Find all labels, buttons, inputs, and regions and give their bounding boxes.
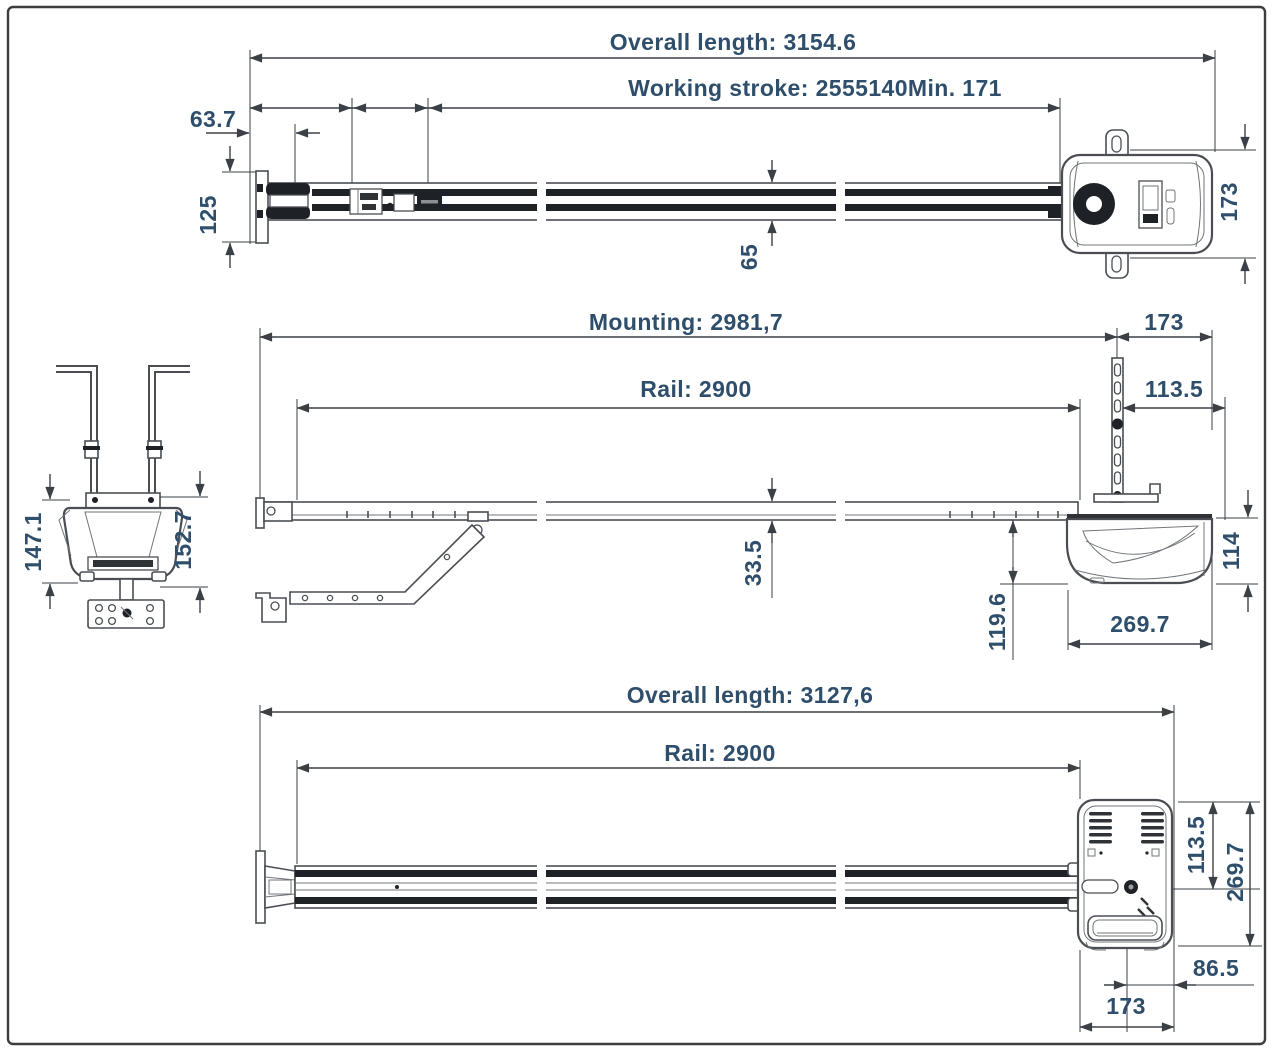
dim-front-total-height: 152.7 xyxy=(170,510,196,570)
dim-side-rail: Rail: 2900 xyxy=(640,376,751,402)
end-plate-bottom-view xyxy=(256,851,265,923)
motor-head-side-view xyxy=(1067,514,1212,583)
dim-bottom-overall-length: Overall length: 3127,6 xyxy=(627,682,874,708)
dim-top-overall-length: Overall length: 3154.6 xyxy=(610,29,857,55)
dim-bottom-shaft-offset: 113.5 xyxy=(1183,816,1209,874)
dim-side-head-overhang: 173 xyxy=(1144,309,1184,335)
dim-side-head-length: 269.7 xyxy=(1110,611,1170,637)
dim-bottom-head-length: 269.7 xyxy=(1222,842,1248,902)
dim-top-bracket-height: 125 xyxy=(195,195,221,235)
dim-bottom-rail: Rail: 2900 xyxy=(664,740,775,766)
motor-head-bottom-view xyxy=(1068,800,1172,950)
end-bracket-top-view xyxy=(256,171,268,243)
dim-top-rail-width: 65 xyxy=(736,244,762,270)
dim-side-mounting: Mounting: 2981,7 xyxy=(589,309,783,335)
dim-side-rail-height: 33.5 xyxy=(740,540,766,586)
dim-side-head-drop: 119.6 xyxy=(984,593,1010,651)
dim-bottom-shaft-to-edge: 86.5 xyxy=(1193,955,1239,981)
trolley-side-view xyxy=(468,512,488,521)
garage-opener-dimension-drawing: Overall length: 3154.6 Working stroke: 2… xyxy=(0,0,1273,1051)
dim-top-head-width: 173 xyxy=(1216,182,1242,222)
rail-side-view xyxy=(262,502,1078,520)
dim-side-head-height: 114 xyxy=(1218,532,1244,570)
rail-top-view xyxy=(262,183,1078,220)
dim-top-left-offset: 63.7 xyxy=(190,106,236,132)
dim-front-overall-height: 147.1 xyxy=(20,512,46,572)
dim-top-working-stroke: Working stroke: 2555140Min. 171 xyxy=(628,75,1002,101)
technical-drawing-page: Overall length: 3154.6 Working stroke: 2… xyxy=(0,0,1273,1051)
dim-side-bracket-offset: 113.5 xyxy=(1145,376,1203,402)
dim-bottom-head-width: 173 xyxy=(1106,993,1146,1019)
